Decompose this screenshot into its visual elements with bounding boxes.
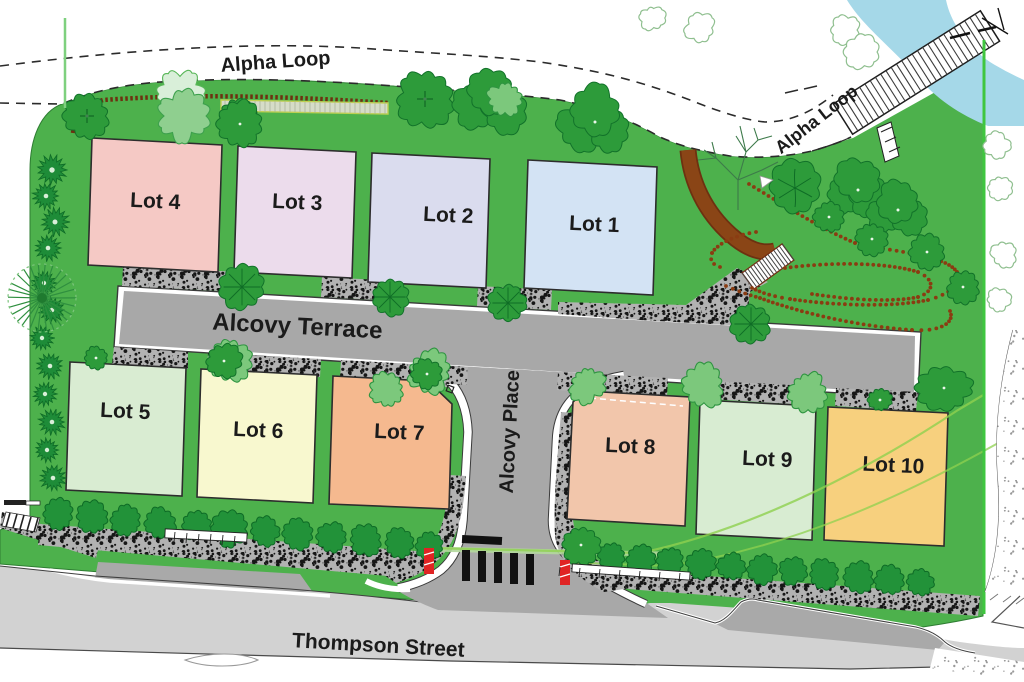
svg-text:Lot 5: Lot 5: [100, 399, 152, 424]
svg-text:Lot 2: Lot 2: [423, 203, 474, 228]
svg-text:Lot 9: Lot 9: [742, 447, 793, 472]
svg-text:Lot 4: Lot 4: [130, 189, 182, 214]
svg-text:Lot 6: Lot 6: [233, 418, 284, 443]
svg-text:Lot 1: Lot 1: [569, 212, 621, 237]
svg-text:Lot 3: Lot 3: [272, 190, 323, 215]
svg-text:Lot 7: Lot 7: [374, 420, 425, 445]
svg-text:Lot 8: Lot 8: [605, 434, 657, 459]
svg-text:Lot 10: Lot 10: [862, 453, 925, 479]
